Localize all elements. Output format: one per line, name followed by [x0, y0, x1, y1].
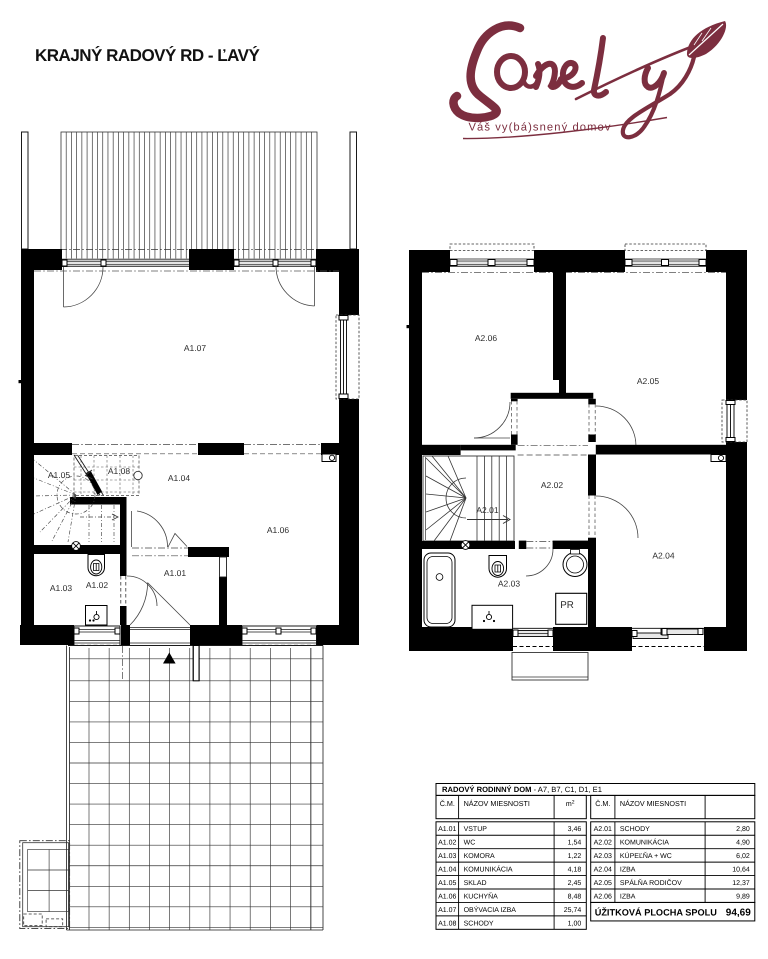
svg-text:KRAJNÝ RADOVÝ RD - ĽAVÝ: KRAJNÝ RADOVÝ RD - ĽAVÝ — [35, 45, 260, 65]
svg-text:NÁZOV MIESNOSTI: NÁZOV MIESNOSTI — [464, 799, 530, 808]
svg-text:9,89: 9,89 — [736, 893, 750, 900]
svg-text:WC: WC — [464, 840, 476, 847]
svg-text:A1.08: A1.08 — [108, 466, 130, 476]
svg-text:A2.02: A2.02 — [541, 480, 563, 490]
svg-text:Č.M.: Č.M. — [440, 799, 455, 808]
svg-text:10,64: 10,64 — [732, 867, 750, 874]
svg-text:A2.01: A2.01 — [476, 505, 498, 515]
svg-text:25,74: 25,74 — [564, 907, 582, 914]
svg-text:8,48: 8,48 — [568, 893, 582, 900]
svg-text:A2.04: A2.04 — [652, 551, 674, 561]
svg-text:IZBA: IZBA — [620, 893, 636, 900]
svg-text:2,80: 2,80 — [736, 826, 750, 833]
svg-text:1,22: 1,22 — [568, 853, 582, 860]
svg-text:A2.06: A2.06 — [594, 893, 612, 900]
svg-text:NÁZOV MIESNOSTI: NÁZOV MIESNOSTI — [620, 799, 686, 808]
svg-text:2,45: 2,45 — [568, 880, 582, 887]
svg-text:VSTUP: VSTUP — [464, 826, 488, 833]
svg-text:A1.03: A1.03 — [438, 853, 456, 860]
svg-text:A1.05: A1.05 — [438, 880, 456, 887]
svg-text:KOMUNIKÁCIA: KOMUNIKÁCIA — [464, 865, 513, 874]
svg-text:A1.05: A1.05 — [48, 470, 70, 480]
svg-text:Váš vy(bá)snený domov: Váš vy(bá)snený domov — [468, 122, 611, 134]
svg-text:A2.06: A2.06 — [475, 333, 497, 343]
svg-text:OBÝVACIA IZBA: OBÝVACIA IZBA — [464, 905, 517, 914]
svg-text:KOMUNIKÁCIA: KOMUNIKÁCIA — [620, 838, 669, 847]
svg-text:PR: PR — [560, 600, 574, 611]
svg-text:1,54: 1,54 — [568, 840, 582, 847]
svg-text:A2.05: A2.05 — [637, 376, 659, 386]
svg-text:6,02: 6,02 — [736, 853, 750, 860]
svg-text:KÚPEĽŇA + WC: KÚPEĽŇA + WC — [620, 851, 672, 860]
svg-text:KUCHYŇA: KUCHYŇA — [464, 891, 499, 900]
svg-text:A2.05: A2.05 — [594, 880, 612, 887]
svg-text:SCHODY: SCHODY — [620, 826, 650, 833]
svg-text:IZBA: IZBA — [620, 867, 636, 874]
svg-text:SCHODY: SCHODY — [464, 920, 494, 927]
svg-text:1,00: 1,00 — [568, 920, 582, 927]
svg-text:KOMORA: KOMORA — [464, 853, 495, 860]
svg-text:A1.02: A1.02 — [86, 580, 108, 590]
svg-text:12,37: 12,37 — [732, 880, 750, 887]
svg-text:A1.02: A1.02 — [438, 840, 456, 847]
svg-text:SKLAD: SKLAD — [464, 880, 487, 887]
svg-text:4,90: 4,90 — [736, 840, 750, 847]
svg-text:A1.07: A1.07 — [184, 343, 206, 353]
svg-text:A1.01: A1.01 — [164, 568, 186, 578]
svg-text:A1.08: A1.08 — [438, 920, 456, 927]
svg-text:RADOVÝ RODINNÝ DOM - A7, B7, C: RADOVÝ RODINNÝ DOM - A7, B7, C1, D1, E1 — [442, 785, 602, 794]
svg-text:A2.04: A2.04 — [594, 867, 612, 874]
svg-text:Č.M.: Č.M. — [595, 799, 610, 808]
svg-text:3,46: 3,46 — [568, 826, 582, 833]
svg-text:4,18: 4,18 — [568, 867, 582, 874]
svg-text:A2.01: A2.01 — [594, 826, 612, 833]
svg-text:ÚŽITKOVÁ PLOCHA SPOLU: ÚŽITKOVÁ PLOCHA SPOLU — [595, 906, 718, 917]
svg-text:A2.02: A2.02 — [594, 840, 612, 847]
svg-text:94,69: 94,69 — [726, 907, 751, 918]
svg-text:A1.06: A1.06 — [267, 525, 289, 535]
svg-text:A1.04: A1.04 — [438, 867, 456, 874]
svg-text:A1.06: A1.06 — [438, 893, 456, 900]
svg-text:A1.01: A1.01 — [438, 826, 456, 833]
svg-text:A2.03: A2.03 — [594, 853, 612, 860]
svg-text:A1.03: A1.03 — [50, 583, 72, 593]
svg-text:SPÁLŇA RODIČOV: SPÁLŇA RODIČOV — [620, 878, 682, 887]
svg-text:A1.04: A1.04 — [168, 473, 190, 483]
svg-text:A1.07: A1.07 — [438, 907, 456, 914]
svg-text:A2.03: A2.03 — [498, 579, 520, 589]
